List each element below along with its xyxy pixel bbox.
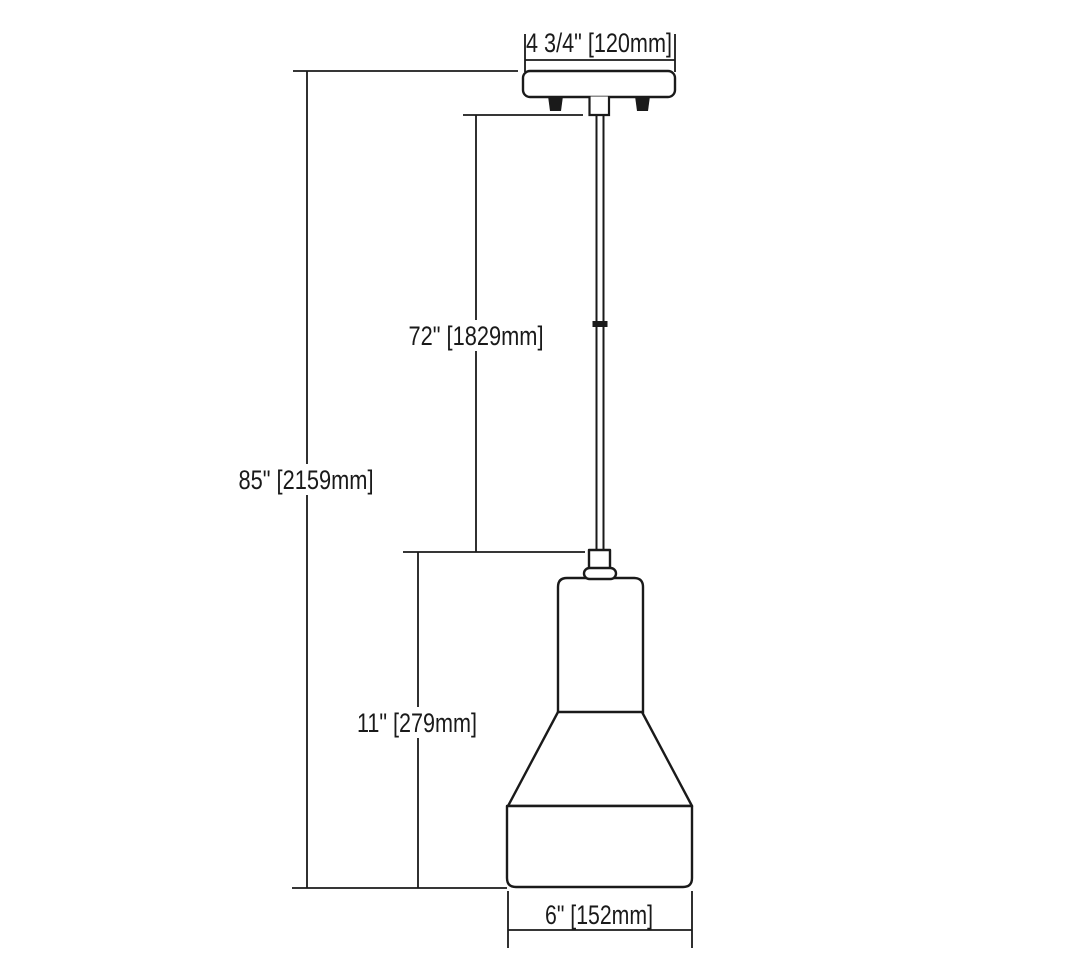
canopy	[523, 71, 675, 97]
dim-shade-height-label: 11" [279mm]	[357, 708, 477, 738]
diagram-stage: 4 3/4" [120mm] 85" [2159mm] 72" [1829mm]…	[0, 0, 1080, 976]
shade-neck	[558, 578, 643, 713]
fixture-group	[507, 71, 692, 887]
dim-canopy-width-label: 4 3/4" [120mm]	[526, 28, 672, 58]
collar	[584, 568, 616, 579]
mounting-screw-left	[548, 96, 563, 111]
stem	[590, 97, 610, 116]
cord-splice	[593, 321, 608, 327]
dim-shade-width-label: 6" [152mm]	[545, 900, 653, 930]
pendant-dimension-diagram: 4 3/4" [120mm] 85" [2159mm] 72" [1829mm]…	[0, 0, 1080, 976]
dim-overall-height-label: 85" [2159mm]	[239, 465, 374, 495]
shade-drum	[507, 806, 692, 887]
dim-cord-length-label: 72" [1829mm]	[409, 321, 544, 351]
mounting-screw-right	[635, 96, 650, 111]
shade-cone	[508, 712, 692, 806]
